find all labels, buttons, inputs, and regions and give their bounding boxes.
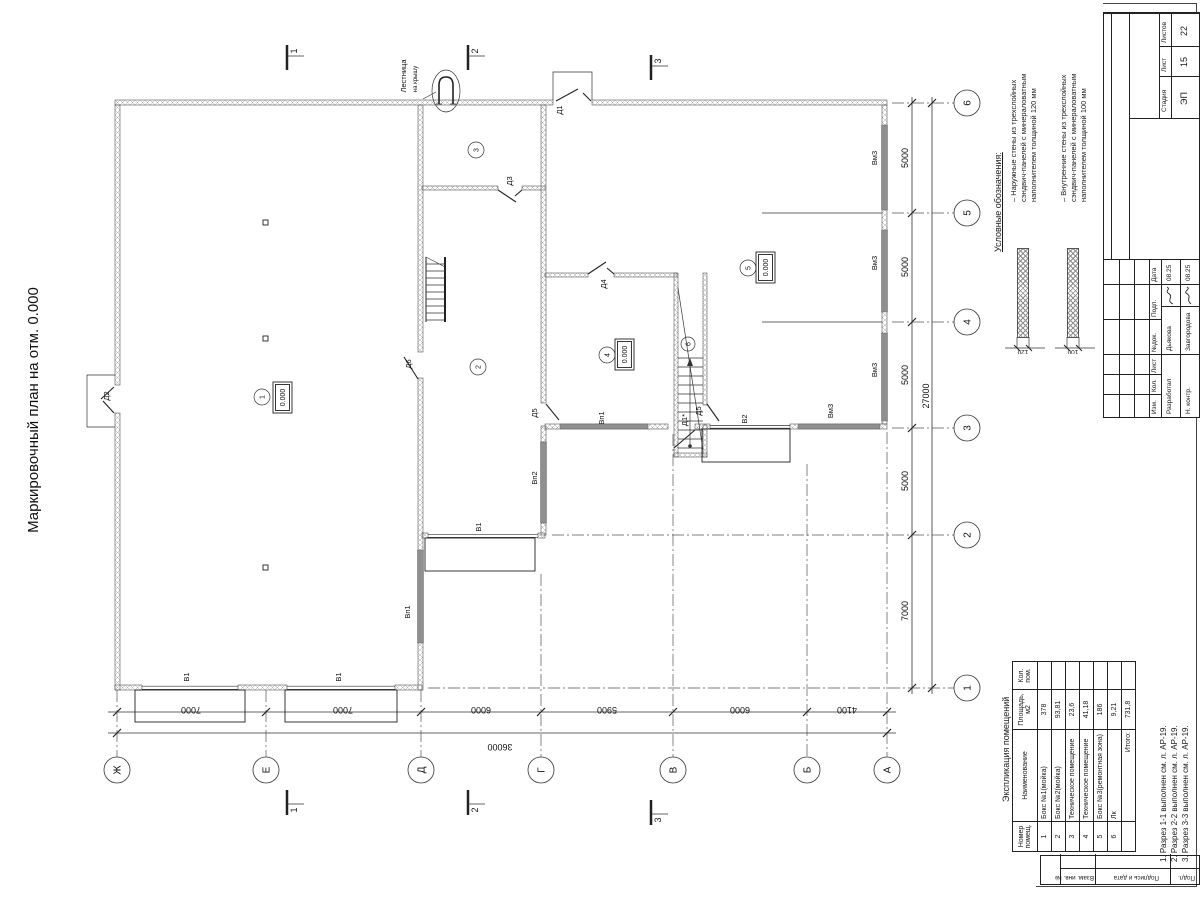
exp-cell <box>1038 662 1052 690</box>
table-row-total: Итого: 731,8 <box>1122 662 1136 852</box>
window-label: Вм3 <box>870 363 879 377</box>
exp-cell: 3 <box>1066 822 1080 852</box>
table-row: 2 Бокс №2(мойка) 93,81 <box>1052 662 1066 852</box>
dim-value: 7000 <box>333 705 353 715</box>
exp-cell: 4 <box>1080 822 1094 852</box>
room-number: 3 <box>474 148 481 152</box>
axis-letter: Г <box>537 767 548 773</box>
exp-cell: 6 <box>1108 822 1122 852</box>
axis-letter: В <box>669 766 680 773</box>
door-label: Д1 <box>555 105 564 114</box>
stamp-col-ndok: №док. <box>1151 333 1158 352</box>
axis-letter: Е <box>262 766 273 773</box>
dim-value: 5000 <box>900 471 910 491</box>
room-number: 4 <box>605 353 612 357</box>
room-markers: 1 2 3 4 5 6 0.000 0.000 0.000 <box>254 142 775 413</box>
dim-total: 36000 <box>487 742 512 752</box>
opening-labels: Д1 Д2 Д3 Д4 Д5 Д5 Д1* Д6 В1 В1 В1 В2 Вп1… <box>102 105 879 681</box>
axis-number: 5 <box>963 210 974 216</box>
legend-item-text: – Внутренние стены из трехслойных сэндви… <box>1059 52 1088 202</box>
door-label: Д5 <box>694 406 703 415</box>
stamp-col-kol: Кол. <box>1151 379 1158 392</box>
dim-value: 4100 <box>837 705 857 715</box>
exp-cell: Техническое помещение <box>1080 730 1094 822</box>
exp-cell <box>1066 662 1080 690</box>
exp-cell <box>1108 662 1122 690</box>
gate-label: В1 <box>474 522 483 531</box>
table-row: 5 Бокс №3(ремонтная зона) 186 <box>1094 662 1108 852</box>
axis-number: 3 <box>963 425 974 431</box>
elevation-mark: 0.000 <box>763 259 770 277</box>
stamp-col-podp: Подп. <box>1151 300 1158 317</box>
stamp-sheet-value: 15 <box>1179 57 1189 67</box>
axis-number: 1 <box>963 685 974 691</box>
frame-line-top <box>1103 3 1197 4</box>
strip-podl: Подл. <box>1178 874 1195 881</box>
exp-cell: 378 <box>1038 690 1052 730</box>
section-number: 2 <box>470 807 480 812</box>
gate-label: В1 <box>334 672 343 681</box>
stamp-date: 08.25 <box>1166 265 1173 281</box>
exp-cell <box>1052 662 1066 690</box>
exp-header: Номер помещ. <box>1013 822 1038 852</box>
axis-letter: Б <box>803 766 814 773</box>
room-number: 2 <box>476 365 483 369</box>
axis-letter: Д <box>417 766 428 773</box>
section-number: 3 <box>653 817 663 822</box>
gate-label: В1 <box>182 672 191 681</box>
exp-cell: 1 <box>1038 822 1052 852</box>
exp-cell: 9,21 <box>1108 690 1122 730</box>
explication-table: Экспликация помещений Номер помещ. Наиме… <box>1001 656 1153 852</box>
door-label: Д4 <box>599 279 608 288</box>
stamp-col-izm: Изм. <box>1151 400 1158 414</box>
page-title: Маркировочный план на отм. 0.000 <box>25 287 42 533</box>
section-number: 3 <box>653 58 663 63</box>
ladder-note-line2: на крышу <box>413 66 419 92</box>
door-label: Д5 <box>530 408 539 417</box>
axis-letter: А <box>883 766 894 773</box>
room-number: 1 <box>260 395 267 399</box>
exp-cell: Бокс №3(ремонтная зона) <box>1094 730 1108 822</box>
door-leaves <box>101 89 719 448</box>
window-label: Вп1 <box>403 605 412 618</box>
dim-value: 5000 <box>900 148 910 168</box>
stamp-role: Н. контр. <box>1185 387 1192 414</box>
note-line: 1. Разрез 1-1 выполнен см. л. АР-19. <box>1158 634 1169 862</box>
stamp-sheet-label: Лист <box>1161 58 1168 72</box>
exp-header: Кол. пом. <box>1013 662 1038 690</box>
legend-wall-symbol-inner <box>1067 248 1079 338</box>
note-line: 2. Разрез 2-2 выполнен см. л. АР-19. <box>1169 634 1180 862</box>
dim-value: 6000 <box>471 705 491 715</box>
exp-header: Наименование <box>1013 730 1038 822</box>
title-block: Изм. Кол. Лист №док. Подп. Дата Разработ… <box>1103 12 1200 418</box>
axis-grid-lines <box>117 103 954 757</box>
dim-value: 5000 <box>900 257 910 277</box>
dim-value: 7000 <box>900 601 910 621</box>
section-number: 1 <box>289 48 299 53</box>
anchor-marks <box>263 220 268 570</box>
window-label: Вп2 <box>530 471 539 484</box>
elevation-mark: 0.000 <box>280 389 287 407</box>
table-row: 4 Техническое помещение 41,18 <box>1080 662 1094 852</box>
window-label: Вм3 <box>870 151 879 165</box>
gate-label: В2 <box>740 414 749 423</box>
ladder-note-line1: Лестница <box>399 59 408 93</box>
exp-cell <box>1122 822 1136 852</box>
axis-number: 2 <box>963 532 974 538</box>
dimension-lines <box>108 97 936 737</box>
table-row: 1 Бокс №1(мойка) 378 <box>1038 662 1052 852</box>
legend-heading: Условные обозначения: <box>993 152 1003 252</box>
door-label: Д1* <box>680 414 689 426</box>
entry-vestibules <box>87 72 592 427</box>
window-label: Вм3 <box>870 256 879 270</box>
notes: 1. Разрез 1-1 выполнен см. л. АР-19. 2. … <box>1158 634 1192 862</box>
exp-header: Площадь, м2 <box>1013 690 1038 730</box>
explication-title: Экспликация помещений <box>1001 697 1011 802</box>
explication-grid: Номер помещ. Наименование Площадь, м2 Ко… <box>1012 661 1136 852</box>
exp-cell: 41,18 <box>1080 690 1094 730</box>
legend-wall-symbol-outer <box>1017 248 1029 338</box>
exp-cell: Техническое помещение <box>1066 730 1080 822</box>
room-number: 5 <box>746 266 753 270</box>
dim-total: 27000 <box>921 383 931 408</box>
drawing-sheet: Маркировочный план на отм. 0.000 <box>0 0 1200 900</box>
exp-cell: 23,6 <box>1066 690 1080 730</box>
legend-item-text: – Наружные стены из трехслойных сэндвич-… <box>1009 52 1038 202</box>
stamp-role: Разработал <box>1166 379 1173 414</box>
window-label: Вм3 <box>826 404 835 418</box>
exp-cell: 186 <box>1094 690 1108 730</box>
legend-dim-value: 100 <box>1067 348 1078 354</box>
legend: Условные обозначения: 120 – Наружные сте… <box>993 52 1105 352</box>
table-row: 6 Лк 9,21 <box>1108 662 1122 852</box>
section-number: 1 <box>289 807 299 812</box>
strip-podpis: Подпись и дата <box>1114 874 1159 881</box>
frame-line-bottom <box>1036 886 1197 887</box>
exp-cell: Бокс №1(мойка) <box>1038 730 1052 822</box>
dimension-labels: 7000 7000 6000 5900 6000 4100 36000 5000… <box>181 148 931 752</box>
exp-cell: Лк <box>1108 730 1122 822</box>
dim-value: 5000 <box>900 365 910 385</box>
section-number: 2 <box>470 48 480 53</box>
signature-icon <box>1163 286 1177 306</box>
dim-value: 7000 <box>181 705 201 715</box>
legend-dim-value: 120 <box>1017 348 1028 354</box>
stamp-stage-value: ЭП <box>1179 92 1189 105</box>
exp-cell: 2 <box>1052 822 1066 852</box>
dim-value: 5900 <box>597 705 617 715</box>
exp-total-value: 731,8 <box>1122 690 1136 730</box>
exp-cell <box>1080 662 1094 690</box>
stamp-col-list: Лист <box>1151 359 1158 373</box>
wall-ladder-icon <box>426 257 445 322</box>
note-line: 3. Разрез 3-3 выполнен см. л. АР-19. <box>1180 634 1191 862</box>
axis-number: 6 <box>963 100 974 106</box>
exp-cell: 93,81 <box>1052 690 1066 730</box>
dim-value: 6000 <box>730 705 750 715</box>
window-label: Вп1 <box>597 411 606 424</box>
window-segments <box>418 125 888 643</box>
door-label: Д6 <box>404 359 413 368</box>
stamp-sheets-label: Листов <box>1161 22 1168 43</box>
gates <box>135 425 790 722</box>
stamp-sheets-value: 22 <box>1179 26 1189 36</box>
axis-number: 4 <box>963 319 974 325</box>
exp-cell <box>1122 662 1136 690</box>
exp-total-label: Итого: <box>1122 730 1136 822</box>
exp-cell: 5 <box>1094 822 1108 852</box>
axis-letter: Ж <box>113 765 124 775</box>
table-row: 3 Техническое помещение 23,6 <box>1066 662 1080 852</box>
exp-cell: Бокс №2(мойка) <box>1052 730 1066 822</box>
signature-icon <box>1182 286 1196 306</box>
stamp-col-data: Дата <box>1151 268 1158 282</box>
elevation-mark: 0.000 <box>622 346 629 364</box>
walls <box>115 100 887 690</box>
strip-vzam: Взам. инв. № <box>1055 874 1094 881</box>
room-number: 6 <box>686 342 693 346</box>
stamp-name: Завгородова <box>1185 313 1192 351</box>
stamp-stage-label: Стадия <box>1161 90 1168 112</box>
door-label: Д3 <box>505 176 514 185</box>
door-label: Д2 <box>102 391 111 400</box>
stamp-date: 08.25 <box>1185 265 1192 281</box>
exp-cell <box>1094 662 1108 690</box>
roof-ladder-icon <box>423 70 460 112</box>
stamp-name: Дьякова <box>1166 326 1173 351</box>
